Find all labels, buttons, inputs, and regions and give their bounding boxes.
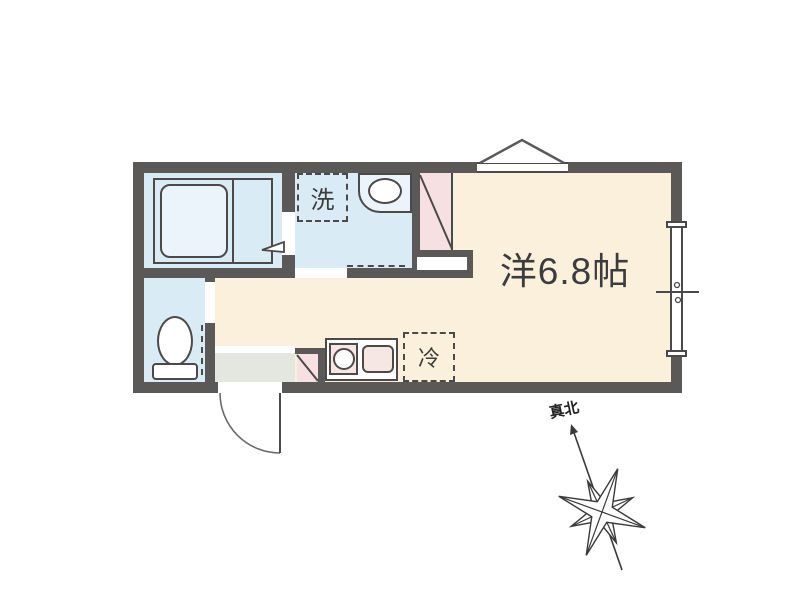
right-window-cap-bottom: [666, 350, 687, 357]
refrigerator-area: 冷: [403, 332, 455, 382]
toilet-bowl: [157, 316, 193, 366]
bathtub: [160, 184, 228, 258]
wall-stub-entrance-right: [318, 354, 325, 382]
kitchen-sink: [362, 345, 394, 373]
north-arrowhead: [570, 424, 578, 435]
refrigerator-label: 冷: [418, 341, 440, 373]
wall-horizontal: [144, 268, 412, 278]
toilet-door-ticks: [201, 325, 203, 375]
washing-machine-area: 洗: [297, 173, 348, 222]
washing-machine-label: 洗: [311, 180, 335, 215]
bathroom-door-opening: [282, 212, 295, 255]
entrance-door-arc: [220, 393, 280, 453]
entrance-door-opening: [218, 382, 282, 393]
compass-rose-icon: [540, 424, 663, 574]
floor-plan: 洗 冷: [0, 0, 800, 609]
top-window-triangle: [480, 140, 564, 163]
entrance-step: [215, 346, 295, 353]
true-north-label: 真北: [547, 396, 581, 423]
right-window-cap-top: [666, 221, 687, 228]
storage-strip: [420, 173, 453, 250]
toilet-door-opening: [205, 282, 215, 323]
main-room-label: 洋6.8帖: [450, 246, 680, 290]
north-arrow-line: [572, 427, 622, 570]
washroom-door-opening: [295, 268, 347, 278]
washroom-threshold-dashes: [347, 265, 405, 267]
entrance-floor: [215, 353, 295, 382]
stove-burner: [333, 348, 355, 370]
vanity-basin: [368, 178, 402, 204]
top-window: [477, 162, 568, 173]
shoe-storage: [297, 354, 318, 382]
toilet-base: [152, 363, 198, 380]
